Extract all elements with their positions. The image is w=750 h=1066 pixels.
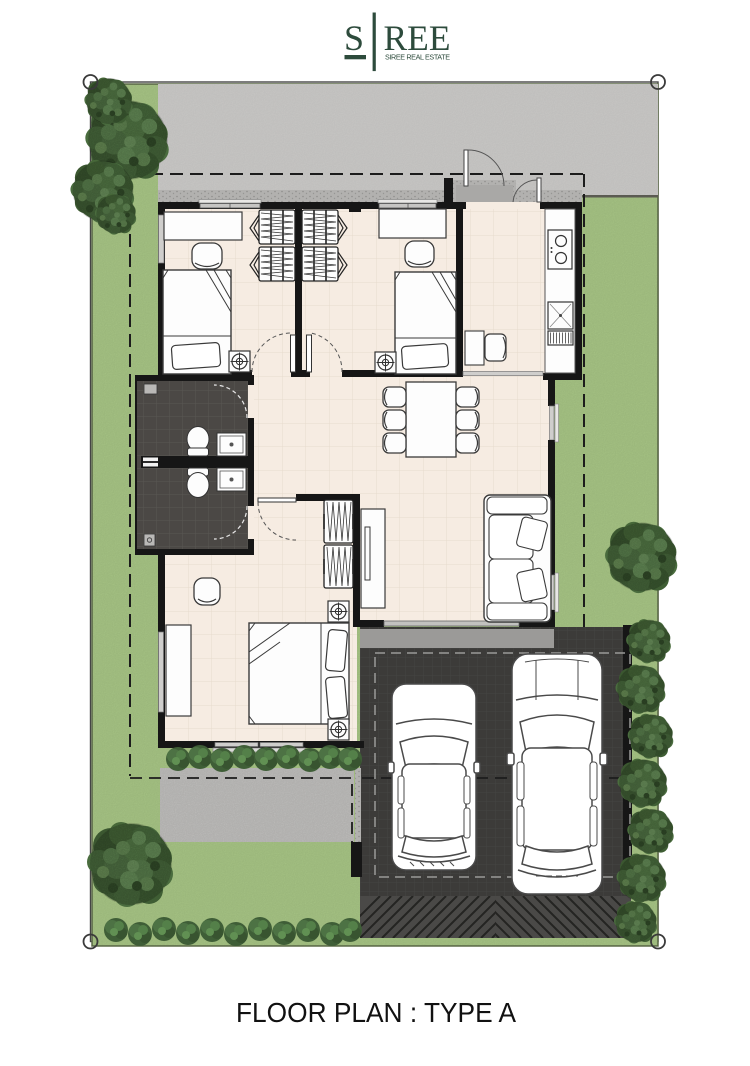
svg-text:SIREE REAL ESTATE: SIREE REAL ESTATE xyxy=(385,53,450,62)
svg-text:FLOOR PLAN : TYPE A: FLOOR PLAN : TYPE A xyxy=(236,997,516,1028)
svg-text:S: S xyxy=(344,18,364,58)
